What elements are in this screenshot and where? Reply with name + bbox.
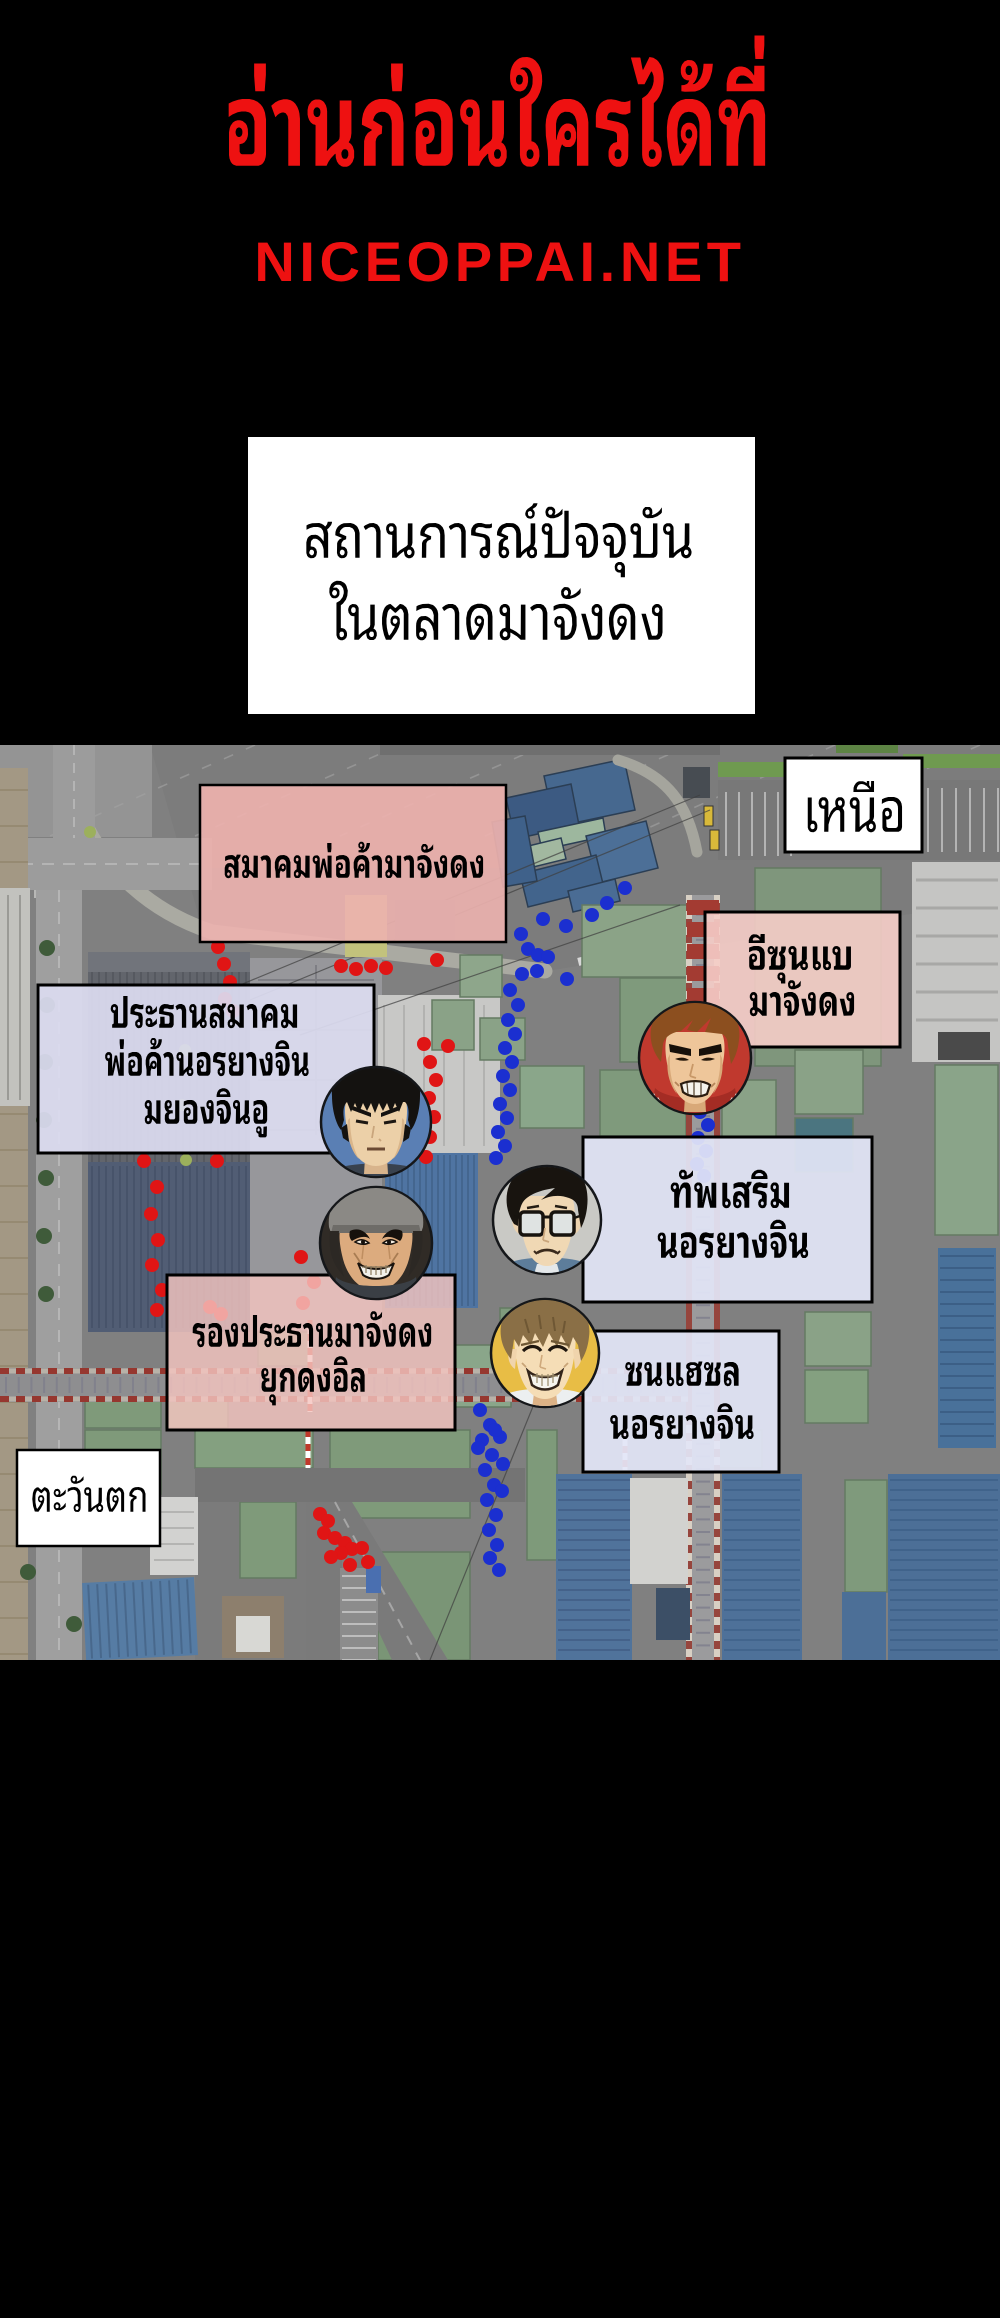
svg-text:NICEOPPAI.NET: NICEOPPAI.NET	[254, 230, 745, 293]
